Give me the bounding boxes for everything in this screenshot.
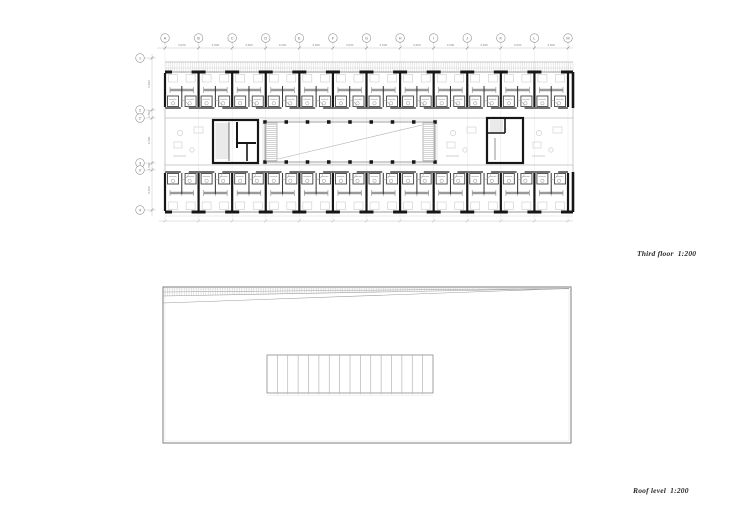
svg-text:3,600: 3,600: [279, 43, 287, 47]
svg-text:3,600: 3,600: [312, 43, 320, 47]
svg-text:J: J: [466, 36, 468, 40]
svg-text:M: M: [566, 36, 569, 40]
svg-text:C: C: [231, 36, 234, 40]
svg-text:3,600: 3,600: [447, 43, 455, 47]
svg-text:2: 2: [139, 108, 141, 112]
svg-text:3,600: 3,600: [346, 43, 354, 47]
svg-text:6,600: 6,600: [147, 136, 151, 144]
svg-text:3': 3': [139, 168, 142, 172]
svg-text:4: 4: [139, 208, 141, 212]
svg-text:3,600: 3,600: [547, 43, 555, 47]
third-floor-plan: A3,600B3,600C3,600D3,600E3,600F3,600G3,6…: [136, 34, 573, 223]
svg-text:1,500: 1,500: [147, 162, 151, 170]
third-floor-scale-label: Third floor 1:200: [637, 249, 696, 258]
svg-text:3,600: 3,600: [413, 43, 421, 47]
svg-text:3,600: 3,600: [245, 43, 253, 47]
svg-text:L: L: [533, 36, 535, 40]
svg-text:5,400: 5,400: [147, 186, 151, 194]
svg-text:1,500: 1,500: [147, 110, 151, 118]
svg-text:3,600: 3,600: [380, 43, 388, 47]
svg-text:3,600: 3,600: [178, 43, 186, 47]
svg-text:1: 1: [139, 56, 141, 60]
roof-plan: [163, 287, 571, 443]
svg-text:H: H: [399, 36, 402, 40]
svg-text:3,600: 3,600: [514, 43, 522, 47]
drawing-sheet: A3,600B3,600C3,600D3,600E3,600F3,600G3,6…: [0, 0, 730, 516]
svg-text:5,400: 5,400: [147, 80, 151, 88]
svg-text:A: A: [164, 36, 167, 40]
svg-text:D: D: [264, 36, 267, 40]
svg-text:G: G: [365, 36, 368, 40]
svg-text:3: 3: [139, 161, 141, 165]
svg-text:2': 2': [139, 116, 142, 120]
svg-text:I: I: [433, 36, 434, 40]
svg-text:3,600: 3,600: [480, 43, 488, 47]
roof-level-scale-label: Roof level 1:200: [633, 486, 689, 495]
plans-svg: A3,600B3,600C3,600D3,600E3,600F3,600G3,6…: [0, 0, 730, 516]
svg-text:3,600: 3,600: [212, 43, 220, 47]
